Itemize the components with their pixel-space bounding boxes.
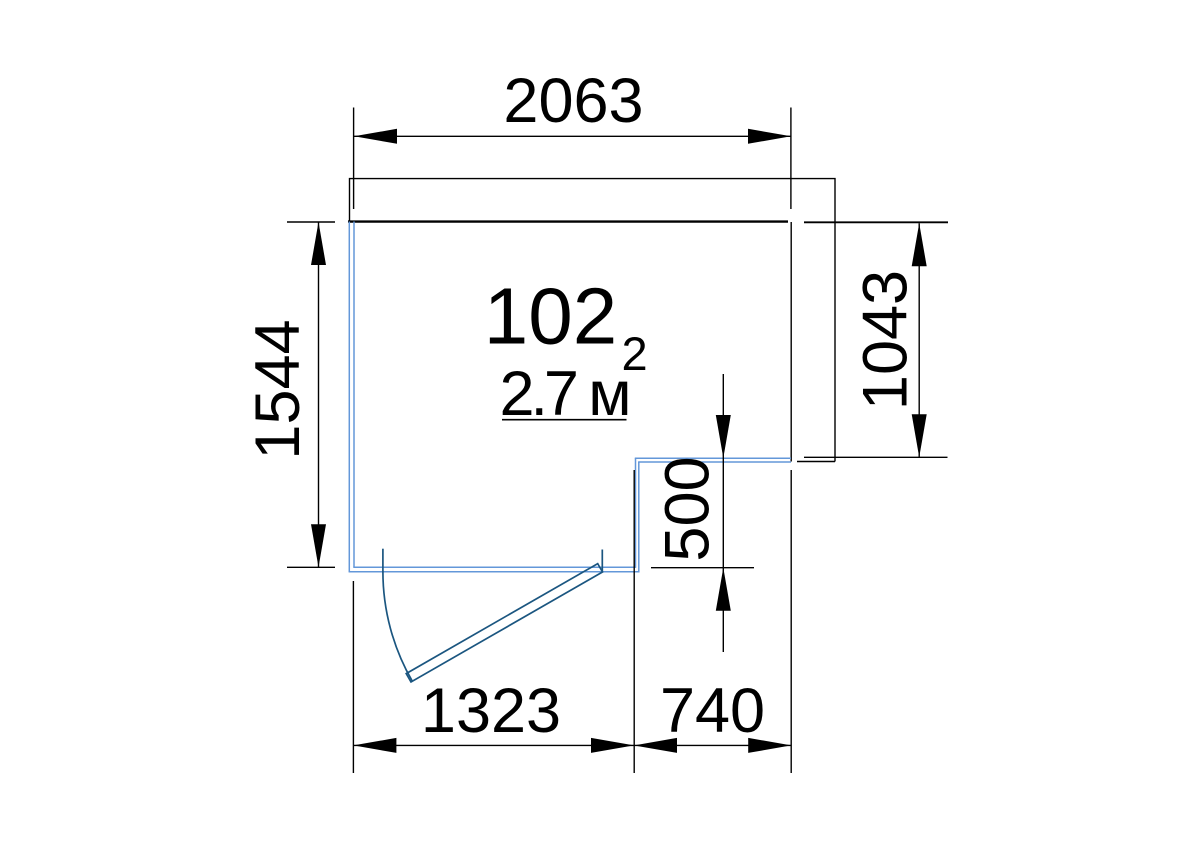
svg-text:500: 500 xyxy=(653,456,723,561)
svg-text:102: 102 xyxy=(484,272,617,361)
svg-text:740: 740 xyxy=(660,676,765,746)
svg-text:2.7 м: 2.7 м xyxy=(500,359,632,429)
svg-text:1043: 1043 xyxy=(851,270,921,410)
svg-text:2063: 2063 xyxy=(503,66,643,136)
svg-text:1323: 1323 xyxy=(421,676,561,746)
svg-text:2: 2 xyxy=(622,327,648,380)
svg-text:1544: 1544 xyxy=(243,319,313,459)
